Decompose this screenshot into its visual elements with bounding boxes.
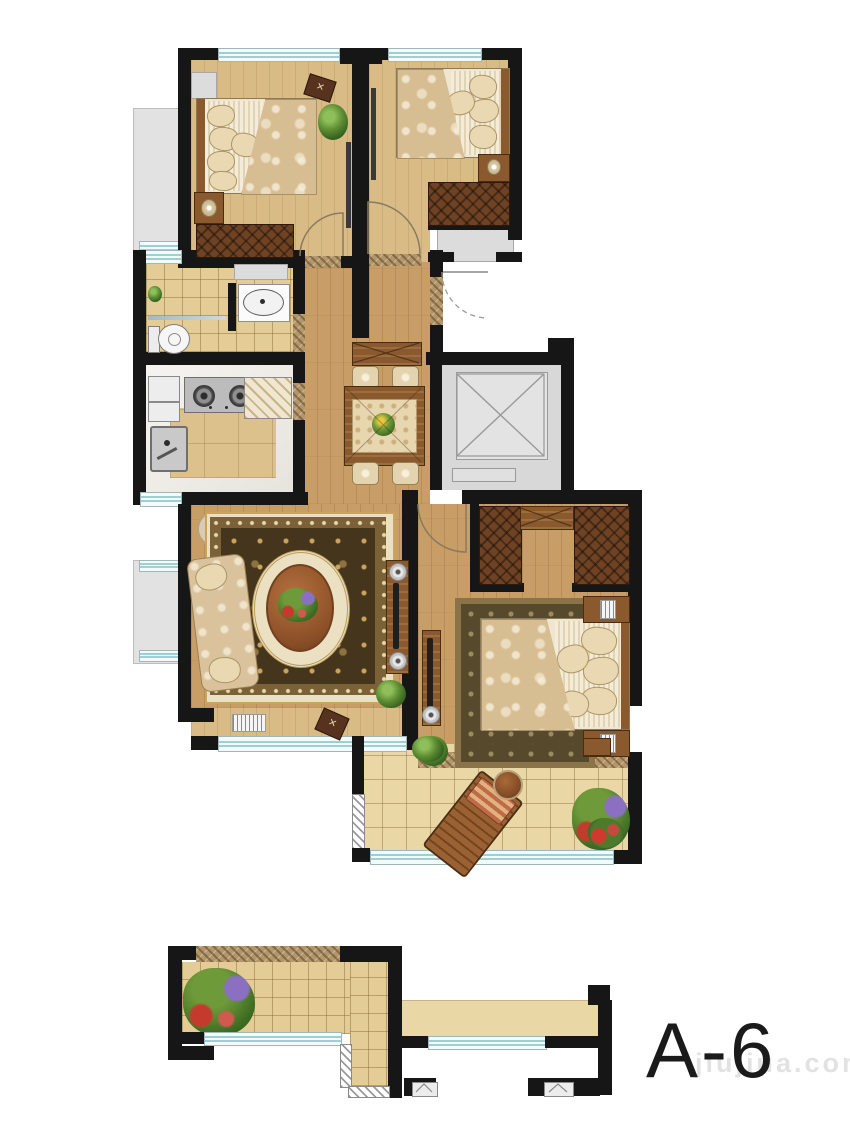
mirror-bedroom1 [346,142,351,228]
wall [496,252,522,262]
wall [352,62,369,338]
master-bed [480,618,630,730]
ac-platform-left-bottom [133,560,180,664]
unit-label: A-6 [646,1005,776,1096]
closet-cabinet [520,506,574,530]
wall [182,1032,204,1044]
bed1 [196,98,316,194]
wall [168,1046,214,1060]
wall [293,365,305,383]
faucet [157,447,178,460]
balcony-flowers-small [588,818,624,848]
wall [612,850,640,864]
wall [352,848,370,862]
balcony-bench [583,738,611,756]
lamp-bedroom1 [201,199,217,217]
wall [293,250,305,314]
speaker-icon [389,563,407,581]
wall [470,504,479,592]
entry-door-arc [442,272,488,318]
terrace-extension-floor [402,1000,598,1037]
column-marker [544,1082,574,1097]
basin-faucet [260,299,265,304]
wall [598,1000,612,1095]
sideboard [352,342,422,366]
drain [164,440,170,446]
wall [168,946,182,1060]
master-bed-headboard [621,619,629,729]
wall [388,946,402,1098]
balcony-rail-left [352,794,365,850]
wall [133,362,146,505]
terrace-rail-bottom [348,1086,390,1098]
sofa-pillow [209,657,241,684]
wall [178,504,191,714]
bed2 [396,68,510,158]
wall [545,1036,598,1048]
threshold-entry [430,277,443,325]
threshold-bathroom [293,314,305,352]
terrace-rail-left [340,1044,352,1088]
tv-master [427,638,433,708]
toilet-flush [168,333,181,346]
plant-bathroom [148,286,162,302]
living-bay-strip [191,708,402,736]
wall [561,365,574,490]
wall [178,708,214,722]
coffee-table-flowers [278,588,318,622]
bed2-headboard [501,69,509,157]
knob [209,406,212,409]
wall [352,736,364,794]
wall [178,48,191,260]
wall [430,365,442,490]
terrace-tile-column [350,962,388,1086]
wall [133,352,305,365]
window-bedroom1 [218,48,340,62]
burner-icon [193,385,215,407]
wardrobe-bedroom2 [428,182,510,226]
window-living [218,736,407,752]
window-left-lower-top [139,560,180,572]
wall [628,490,642,706]
window-bathroom [140,250,182,264]
wall [462,490,640,504]
floor-plan-canvas: ✕ [0,0,850,1133]
mirror-bedroom2 [371,88,376,180]
wardrobe-bedroom1 [196,224,294,258]
elevator-car [456,372,548,460]
wall [133,250,146,365]
centerpiece-plant [372,413,395,436]
threshold-bedroom1 [304,256,341,268]
column-marker [412,1082,438,1097]
shower-glass-partition [148,316,226,320]
closet-wardrobe-right [574,506,630,585]
x-mark-icon: ✕ [314,82,325,94]
fridge [148,376,180,402]
balcony-side-table [493,770,523,800]
wall [402,490,418,504]
x-mark-icon: ✕ [326,718,338,731]
terrace-window [204,1032,342,1046]
ac-platform-left-top [133,108,180,256]
threshold-kitchen [293,383,305,420]
wall [341,256,353,268]
speaker-icon [422,706,440,724]
wall [228,283,236,331]
nightstand-lamp [600,600,616,619]
wall [428,252,454,262]
closet-wardrobe-left [479,506,522,585]
books [232,714,266,732]
window-kitchen [140,492,182,507]
kitchen-counter-corner [244,377,292,419]
speaker-icon [389,652,407,670]
wall [191,736,219,750]
window-bedroom2 [388,48,482,62]
flue-box [191,72,217,99]
window-left-lower-bottom [139,650,180,662]
wall [426,352,574,365]
tv-living [393,583,399,649]
wall [402,1036,428,1048]
bed1-headboard [197,99,205,193]
toilet-bowl [158,324,190,354]
kitchen-sink [150,426,188,472]
terrace-extension-window [428,1036,547,1050]
vanity-alcove [234,264,288,280]
wall [508,48,522,240]
kitchen-counter-left [148,402,180,422]
plant-living [376,680,406,708]
dining-chair [352,462,379,485]
balcony-rail-bottom [370,850,614,865]
knob [225,406,228,409]
terrace-flowerbed [183,968,255,1036]
wall [628,752,642,864]
elevator-door [452,468,516,482]
dining-chair [392,462,419,485]
sofa-pillow [192,560,230,594]
lamp-bedroom2 [487,159,501,175]
plant-balcony [412,736,444,762]
plant-bedroom1 [318,104,348,140]
threshold-bedroom2 [369,254,421,266]
